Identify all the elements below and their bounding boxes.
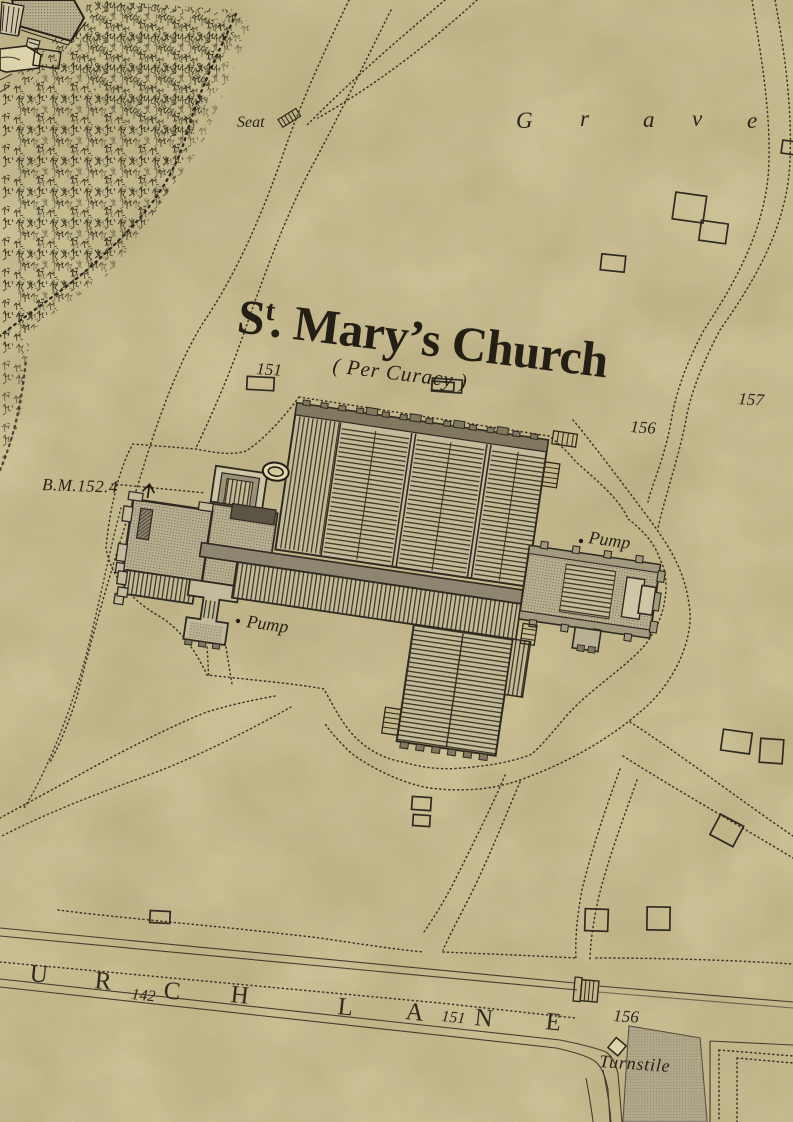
svg-text:151: 151 (256, 359, 283, 380)
svg-text:r: r (580, 106, 590, 131)
svg-text:E: E (544, 1008, 563, 1037)
svg-text:C: C (162, 977, 182, 1006)
svg-text:L: L (336, 993, 355, 1022)
svg-text:151: 151 (441, 1008, 467, 1027)
svg-text:N: N (473, 1004, 495, 1033)
svg-text:142: 142 (131, 986, 157, 1005)
svg-text:157: 157 (738, 389, 766, 410)
svg-text:e: e (747, 108, 757, 133)
svg-text:B.M.152.4: B.M.152.4 (42, 475, 118, 497)
svg-text:G: G (516, 108, 533, 133)
svg-text:R: R (93, 967, 113, 996)
svg-text:a: a (643, 107, 655, 132)
svg-text:v: v (692, 106, 703, 131)
svg-text:Seat: Seat (237, 114, 265, 131)
svg-text:H: H (229, 981, 251, 1010)
svg-text:A: A (404, 998, 426, 1027)
svg-text:156: 156 (630, 417, 657, 438)
svg-text:U: U (28, 960, 50, 989)
svg-text:156: 156 (613, 1006, 640, 1027)
